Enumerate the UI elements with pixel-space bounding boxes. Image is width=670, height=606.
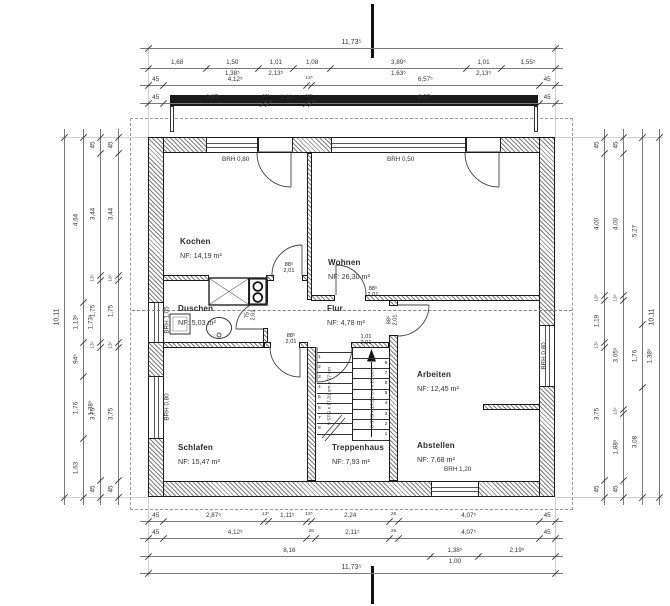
- dim-label: 4,07⁵: [461, 512, 476, 519]
- dim-chain-t1: [140, 48, 563, 49]
- dim-label: 3,75: [90, 408, 97, 420]
- dim-label: 13⁵: [305, 76, 312, 81]
- dim-label: 11,73⁵: [342, 39, 362, 46]
- dim-label: 1,08: [306, 59, 318, 66]
- room-label-schlafen: Schlafen NF: 15,47 m²: [178, 443, 220, 466]
- sill-label-wohnen-window: BRH 0,50: [387, 156, 414, 163]
- dim-label: 6,57⁵: [418, 76, 433, 83]
- dim-label: 1,13⁵: [73, 315, 80, 330]
- dim-label: 3,75: [108, 408, 115, 420]
- dim-label: 45: [152, 76, 159, 83]
- dim-label: 45: [613, 141, 620, 148]
- dim-chain-l3: [100, 129, 101, 505]
- stair-tread: 8: [353, 358, 389, 368]
- sill-label-schlafen-window: BRH 0,80: [164, 393, 171, 420]
- dim-label: 13⁵: [614, 408, 619, 415]
- dim-label: 4,07⁵: [461, 529, 476, 536]
- dim-label: 2,87⁵: [206, 94, 221, 101]
- dim-label: 13⁵: [595, 294, 600, 301]
- dim-label: 1,01: [477, 59, 489, 66]
- dim-label: 13⁵: [109, 341, 114, 348]
- dim-label: 1,73⁵: [88, 315, 95, 330]
- dim-label: 1,75: [90, 305, 97, 317]
- section-marker-bottom: [371, 566, 374, 604]
- dim-label: 1,38⁵: [647, 349, 654, 364]
- dim-label: 1,76: [632, 350, 639, 362]
- dim-label: 1,38⁵: [447, 547, 462, 554]
- dim-chain-b4: [140, 573, 563, 574]
- dim-label: 13⁵: [109, 274, 114, 281]
- dim-label: 45: [594, 141, 601, 148]
- stair-flight-label-left: 9 STG x 17,31 cm x 27 cm: [328, 367, 333, 425]
- window-abstellen: [431, 481, 479, 497]
- dim-chain-r2: [623, 129, 624, 505]
- dim-label: 1,00: [449, 558, 461, 565]
- window-schlafen: [148, 376, 164, 439]
- stair-tread: 4: [317, 383, 352, 393]
- exterior-wall-bottom: [148, 481, 555, 497]
- door-label-arbeiten: 88⁵ 2,01: [387, 315, 400, 326]
- room-label-wohnen: Wohnen NF: 26,30 m²: [328, 258, 370, 281]
- dim-label: 3,75: [594, 408, 601, 420]
- dim-label: 2,19⁵: [510, 547, 525, 554]
- wall-arbeiten-abstellen: [483, 404, 540, 410]
- door-label-duschen: 75 2,01: [245, 310, 258, 321]
- dim-label: 45: [152, 529, 159, 536]
- sill-label-duschen-window: BRH 1,05: [164, 306, 171, 333]
- dim-label: 2,13⁵: [476, 70, 491, 77]
- dim-label: 1,76: [73, 401, 80, 413]
- dim-chain-r1: [604, 129, 605, 505]
- dim-label: 13⁵: [262, 94, 269, 99]
- balcony-parapet: [170, 95, 538, 106]
- dim-label: 3,89⁵: [391, 59, 406, 66]
- dim-label: 5,27: [632, 225, 639, 237]
- door-label-schlafen: 88⁵ 2,01: [286, 333, 297, 346]
- dim-label: 1,68: [171, 59, 183, 66]
- dim-label: 1,11⁵: [280, 512, 294, 519]
- dim-label: 13⁵: [305, 512, 312, 517]
- balcony-side-wall: [170, 106, 174, 132]
- dim-label: 3,44: [108, 208, 115, 220]
- dim-label: 45: [613, 485, 620, 492]
- wall-treppenhaus-arbeiten: [389, 335, 398, 481]
- dim-label: 4,12⁵: [228, 76, 243, 83]
- exterior-wall-right: [539, 137, 555, 497]
- door-label-kochen: 88⁵ 2,01: [284, 262, 295, 275]
- dim-label: 45: [108, 141, 115, 148]
- dim-label: 2,11⁵: [345, 529, 359, 536]
- dim-label: 3,08: [632, 436, 639, 448]
- dim-label: 13⁵: [91, 341, 96, 348]
- dim-label: 45: [544, 512, 551, 519]
- dim-label: 26: [391, 529, 396, 534]
- window-kochen: [206, 137, 258, 153]
- stair-tread: 3: [317, 372, 352, 382]
- wall-wohnen-flur: [311, 295, 335, 301]
- stair-tread: 5: [317, 393, 352, 403]
- dim-label: 13⁵: [91, 274, 96, 281]
- dim-label: 4,00: [594, 218, 601, 230]
- door-label-wohnen: 88⁵ 2,01: [368, 286, 379, 299]
- door-label-treppenhaus: 1,01 2,01: [361, 334, 372, 347]
- balcony-door-opening-wohnen: [466, 138, 501, 152]
- dim-label: 4,12⁵: [228, 529, 243, 536]
- dim-label: 45: [152, 512, 159, 519]
- sill-label-kochen-window: BRH 0,80: [222, 156, 249, 163]
- dim-label: 45: [152, 94, 159, 101]
- dim-label: 4,64: [73, 213, 80, 225]
- dim-label: 2,87⁵: [206, 512, 221, 519]
- balcony-side-wall: [534, 106, 538, 132]
- stair-tread: 8: [317, 423, 352, 433]
- room-label-arbeiten: Arbeiten NF: 12,45 m²: [417, 370, 459, 393]
- dim-chain-t3: [140, 85, 563, 86]
- dim-label: 11,73⁵: [342, 564, 362, 571]
- stair-divider: [352, 347, 353, 441]
- dim-label: 13⁵: [262, 512, 269, 517]
- dim-label: 13⁵: [305, 94, 312, 99]
- wall-flur-arbeiten: [389, 300, 398, 306]
- dim-label: 8,16: [283, 547, 295, 554]
- floor-plan-sheet: 1234567887654321 9 STG x 17,31 cm x 27 c…: [0, 0, 670, 606]
- dim-label: 45: [108, 485, 115, 492]
- dim-label: 1,75: [108, 305, 115, 317]
- dim-chain-r3: [642, 129, 643, 505]
- dim-label: 45: [594, 485, 601, 492]
- dim-label: 94⁵: [73, 355, 80, 365]
- dim-label: 45: [544, 76, 551, 83]
- room-label-duschen: Duschen NF: 5,03 m²: [178, 304, 216, 327]
- dim-label: 1,63: [73, 462, 80, 474]
- dim-label: 1,19: [594, 315, 601, 327]
- dim-label: 1,55⁵: [521, 59, 536, 66]
- room-label-abstellen: Abstellen NF: 7,68 m²: [417, 441, 455, 464]
- dim-label: 4,00: [613, 218, 620, 230]
- dim-label: 3,05⁵: [613, 347, 620, 362]
- stair-tread: 1: [353, 429, 389, 439]
- dim-label: 1,01: [270, 59, 282, 66]
- dim-label: 10,11: [649, 309, 656, 326]
- window-wohnen: [331, 137, 466, 153]
- section-marker-top: [371, 4, 374, 58]
- dim-chain-l2: [83, 129, 84, 505]
- wall-flur-schlafen: [264, 342, 271, 348]
- dim-label: 45: [544, 94, 551, 101]
- dim-chain-l4: [118, 129, 119, 505]
- dim-label: 1,50: [226, 59, 238, 66]
- dim-label: 45: [90, 485, 97, 492]
- dim-label: 2,24: [344, 512, 356, 519]
- balcony-door-opening-kochen: [258, 138, 293, 152]
- stair-tread-edge: [353, 440, 389, 441]
- dim-label: 45: [90, 141, 97, 148]
- dim-label: 13⁵: [614, 294, 619, 301]
- wall-duschen-schlafen: [163, 342, 264, 348]
- dim-chain-b3: [140, 556, 563, 557]
- dim-label: 3,44: [90, 208, 97, 220]
- window-duschen: [148, 302, 164, 343]
- dim-label: 1,88⁵: [613, 440, 620, 455]
- stair-tread: 6: [317, 403, 352, 413]
- dim-chain-b2: [140, 538, 563, 539]
- stair-tread-edge: [317, 434, 352, 435]
- wall-schlafen-treppenhaus: [307, 347, 317, 481]
- dim-label: 13⁵: [595, 341, 600, 348]
- dim-chain-t4: [140, 103, 563, 104]
- dim-label: 26: [391, 512, 396, 517]
- room-label-flur: Flur NF: 4,78 m²: [327, 304, 365, 327]
- stair-tread: 2: [317, 362, 352, 372]
- dim-chain-l1: [64, 129, 65, 505]
- sill-label-abstellen-window: BRH 1,20: [444, 466, 471, 473]
- sill-label-arbeiten-window: BRH 0,80: [541, 342, 548, 369]
- dim-chain-r4: [659, 129, 660, 505]
- dim-label: 6,57⁵: [418, 94, 433, 101]
- dim-label: 10,11: [54, 309, 61, 326]
- dim-label: 26: [308, 529, 313, 534]
- wall-duschen-flur: [263, 280, 268, 303]
- room-label-kochen: Kochen NF: 14,19 m²: [180, 237, 222, 260]
- stair-tread: 7: [317, 413, 352, 423]
- dim-label: 2,13⁵: [268, 70, 283, 77]
- dim-chain-b1: [140, 521, 563, 522]
- wall-kochen-duschen: [163, 275, 209, 281]
- wall-kochen-duschen: [302, 275, 308, 281]
- room-label-treppenhaus: Treppenhaus NF: 7,93 m²: [332, 443, 384, 466]
- stair-flight-label-right: 8 STG x 17,31 cm x 25 cm: [370, 370, 375, 428]
- dim-label: 1,11⁵: [280, 94, 294, 101]
- dim-label: 1,63⁵: [391, 70, 406, 77]
- dim-label: 45: [544, 529, 551, 536]
- stair-tread: 1: [317, 352, 352, 362]
